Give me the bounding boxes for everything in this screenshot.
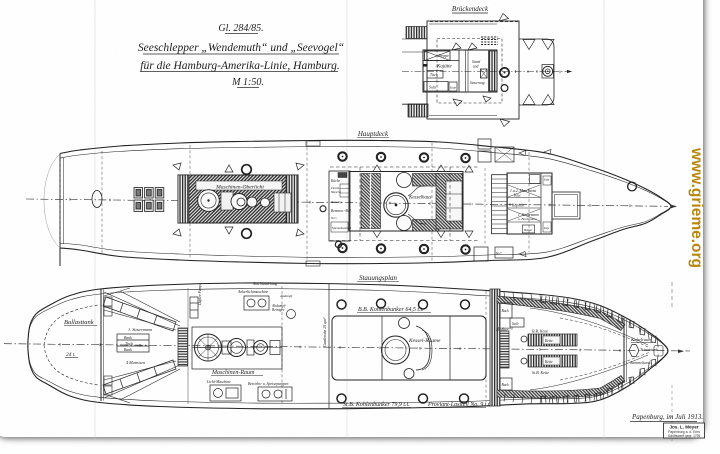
svg-text:Kesselhaus: Kesselhaus [408, 196, 432, 201]
svg-text:W.C.: W.C. [496, 252, 503, 256]
svg-text:Back: Back [502, 383, 510, 387]
svg-text:Betten: Betten [524, 228, 533, 232]
svg-text:Jos. L. Meyer: Jos. L. Meyer [669, 425, 698, 430]
svg-text:Kette: Kette [544, 339, 553, 343]
svg-text:Duplex-Pumpe: Duplex-Pumpe [198, 283, 202, 306]
svg-text:Proviant-Lastteil No. 9 t.t.: Proviant-Lastteil No. 9 t.t. [427, 402, 491, 408]
svg-text:M 1:50.: M 1:50. [231, 77, 264, 88]
svg-text:Kessel-Räume: Kessel-Räume [408, 338, 441, 344]
svg-text:Ankerlichtmaschine: Ankerlichtmaschine [237, 290, 268, 294]
svg-text:B.B. Kette: B.B. Kette [532, 329, 549, 334]
svg-text:1. Steuermann: 1. Steuermann [128, 327, 152, 332]
svg-text:Koje: Koje [543, 179, 550, 182]
svg-text:Küche: Küche [330, 179, 341, 183]
svg-text:Hauptdeck: Hauptdeck [357, 130, 389, 138]
svg-text:Schiffswerft gegr. 1795: Schiffswerft gegr. 1795 [668, 434, 701, 438]
svg-text:Bank: Bank [124, 348, 132, 352]
svg-text:Steuerung: Steuerung [470, 81, 485, 85]
svg-text:Koje: Koje [513, 194, 521, 198]
svg-text:Back: Back [502, 309, 510, 313]
svg-text:Betriebs- u. Speisepumpen: Betriebs- u. Speisepumpen [248, 382, 288, 386]
svg-text:Besatzg.: Besatzg. [331, 200, 343, 204]
svg-text:Koje: Koje [449, 86, 457, 90]
svg-text:Gl. 284/85.: Gl. 284/85. [218, 23, 263, 34]
svg-text:Brückendeck: Brückendeck [452, 5, 489, 13]
svg-text:für die Hamburg-Amerika-Linie,: für die Hamburg-Amerika-Linie, Hamburg. [140, 60, 339, 72]
svg-text:Tisch: Tisch [430, 73, 438, 77]
svg-text:u. Bootsmann: u. Bootsmann [518, 217, 537, 221]
svg-text:Tisch: Tisch [125, 342, 133, 346]
svg-text:4 Matrosen: 4 Matrosen [126, 360, 145, 365]
svg-text:W.C.: W.C. [331, 216, 338, 220]
svg-text:Maschinen-Oberlicht: Maschinen-Oberlicht [215, 185, 264, 191]
svg-text:Seile: Seile [512, 322, 519, 326]
svg-text:Anschlussleitung: Anschlussleitung [252, 282, 278, 286]
svg-text:Kette: Kette [544, 360, 553, 364]
svg-text:Licht-Maschine: Licht-Maschine [206, 380, 231, 384]
svg-text:Reiniger: Reiniger [271, 308, 285, 312]
svg-text:Stand: Stand [472, 60, 480, 64]
svg-text:www.grieme.org: www.grieme.org [688, 147, 705, 268]
svg-text:Koje: Koje [543, 227, 550, 230]
svg-text:Ballasttank: Ballasttank [64, 319, 94, 326]
svg-text:Abdampf: Abdampf [279, 294, 293, 298]
svg-text:Trimmtank: Trimmtank [640, 347, 658, 352]
svg-text:St.B. Kette: St.B. Kette [532, 370, 549, 375]
svg-text:Waschr.: Waschr. [331, 190, 342, 194]
svg-text:Treppe: Treppe [438, 53, 449, 58]
svg-text:Speisekammer: Speisekammer [332, 226, 352, 230]
svg-text:Kajütte: Kajütte [436, 65, 453, 70]
svg-text:Bank: Bank [124, 336, 132, 340]
svg-text:Sammeltank: Sammeltank [630, 360, 651, 365]
svg-text:Papenburg, im Juli 1913.: Papenburg, im Juli 1913. [631, 413, 703, 421]
svg-text:Stahltr.: Stahltr. [496, 327, 509, 332]
svg-text:Garderobe 29 qm²: Garderobe 29 qm² [322, 317, 327, 347]
svg-text:1.u.2. Maschinist: 1.u.2. Maschinist [510, 189, 537, 193]
svg-text:24 t.: 24 t. [66, 351, 76, 358]
svg-text:Seeschlepper „Wendemuth“ und „: Seeschlepper „Wendemuth“ und „Seevogel“ [138, 42, 344, 54]
svg-text:Sofa: Sofa [429, 86, 436, 90]
svg-text:Bemann.-Abtl.: Bemann.-Abtl. [331, 209, 352, 213]
svg-text:Maschinen-Raum: Maschinen-Raum [211, 370, 255, 376]
svg-text:Kabelraum: Kabelraum [630, 337, 652, 342]
svg-text:und: und [473, 65, 479, 69]
svg-text:Stauungsplan: Stauungsplan [359, 274, 398, 282]
svg-text:Kapitän: Kapitän [511, 204, 524, 208]
svg-text:St.B. Kohlenbunker 79,9 t.t.: St.B. Kohlenbunker 79,9 t.t. [343, 402, 410, 408]
svg-text:B.B. Kohlenbunker 64,5 t.t.: B.B. Kohlenbunker 64,5 t.t. [358, 306, 424, 313]
